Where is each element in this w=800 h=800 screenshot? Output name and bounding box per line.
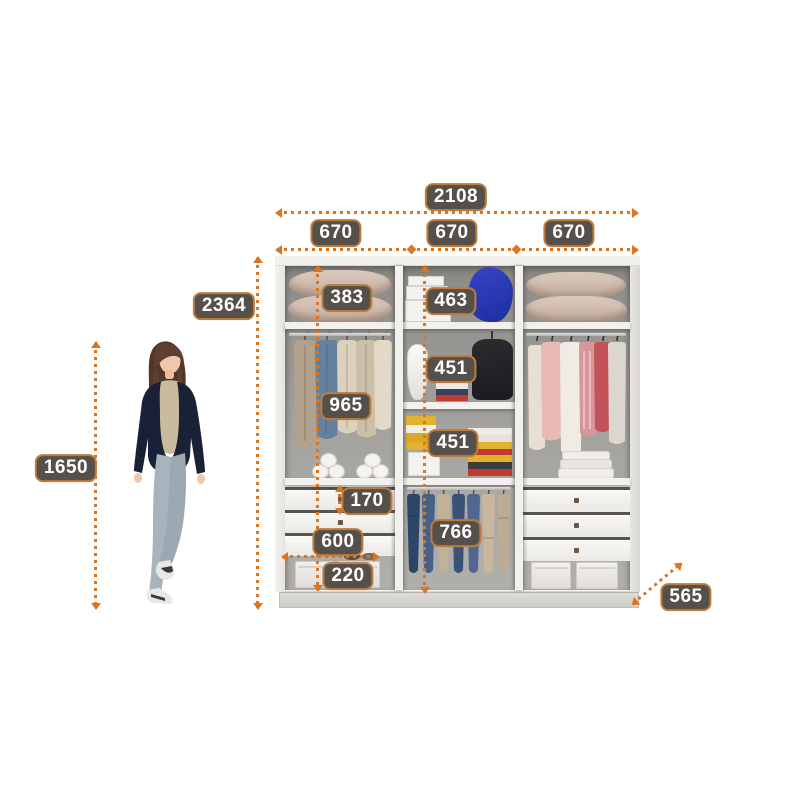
dim-label-cabinet-height: 2364 xyxy=(193,292,255,320)
hanging-clothes-right xyxy=(524,331,628,461)
shelf xyxy=(523,322,630,329)
person-hand xyxy=(134,473,142,483)
drawer-knob xyxy=(574,548,579,553)
wardrobe-plinth xyxy=(279,592,639,608)
wardrobe-dimension-diagram: 2108 670 670 670 2364 1650 383 463 965 4… xyxy=(0,0,800,800)
basket xyxy=(576,562,618,589)
shelf xyxy=(403,402,515,409)
drawer-knob xyxy=(574,498,579,503)
dim-label-left-top-shelf: 383 xyxy=(321,284,372,312)
pillow xyxy=(525,296,627,323)
wardrobe-top-panel xyxy=(275,256,640,266)
dim-label-middle-upper-shelf: 451 xyxy=(425,355,476,383)
dim-label-person-height: 1650 xyxy=(35,454,97,482)
dim-label-middle-lower-shelf: 451 xyxy=(427,429,478,457)
dim-line-cabinet-height xyxy=(256,258,259,608)
folded-towels xyxy=(562,451,610,460)
shelf xyxy=(285,322,395,329)
person-hand xyxy=(197,474,205,484)
column-divider xyxy=(515,266,523,590)
shelf xyxy=(403,322,515,329)
dim-label-middle-hanging: 766 xyxy=(430,519,481,547)
black-garment xyxy=(472,339,513,400)
shelf xyxy=(403,478,515,485)
drawer-knob xyxy=(338,520,343,525)
column-divider xyxy=(395,266,403,590)
towel-roll xyxy=(364,453,381,468)
dim-label-drawer-height: 170 xyxy=(341,487,392,515)
dim-line-middle-column xyxy=(423,267,426,592)
dim-line-total-width xyxy=(277,211,637,214)
dim-label-middle-top-shelf: 463 xyxy=(425,287,476,315)
dim-label-left-hanging: 965 xyxy=(320,392,371,420)
dim-label-depth: 565 xyxy=(660,583,711,611)
dim-label-section-width-right: 670 xyxy=(543,219,594,247)
dim-label-drawer-width: 600 xyxy=(312,528,363,556)
basket xyxy=(531,562,571,589)
dim-label-section-width-middle: 670 xyxy=(426,219,477,247)
storage-box xyxy=(408,276,444,286)
hanging-rod xyxy=(289,333,391,336)
pillow xyxy=(526,272,626,299)
dim-line-section-widths xyxy=(277,248,637,251)
wardrobe-side-panel-left xyxy=(275,256,285,592)
drawer-unit xyxy=(523,485,630,560)
garment xyxy=(560,342,582,455)
dim-label-total-width: 2108 xyxy=(425,183,487,211)
garment xyxy=(374,340,392,430)
garment xyxy=(541,342,563,441)
garment xyxy=(608,342,626,444)
dim-separator xyxy=(407,245,417,255)
hanger-hook xyxy=(491,331,493,340)
wardrobe-side-panel-right xyxy=(630,256,640,592)
dim-separator xyxy=(512,245,522,255)
dim-label-section-width-left: 670 xyxy=(310,219,361,247)
drawer-knob xyxy=(574,523,579,528)
hanging-rod xyxy=(526,333,626,336)
shelf xyxy=(523,478,630,485)
person-illustration xyxy=(113,336,223,614)
dim-label-base-height: 220 xyxy=(322,562,373,590)
person-neck xyxy=(165,370,174,379)
towel-roll xyxy=(320,453,337,468)
person-shoe xyxy=(147,588,173,604)
folded-towels xyxy=(560,459,612,469)
